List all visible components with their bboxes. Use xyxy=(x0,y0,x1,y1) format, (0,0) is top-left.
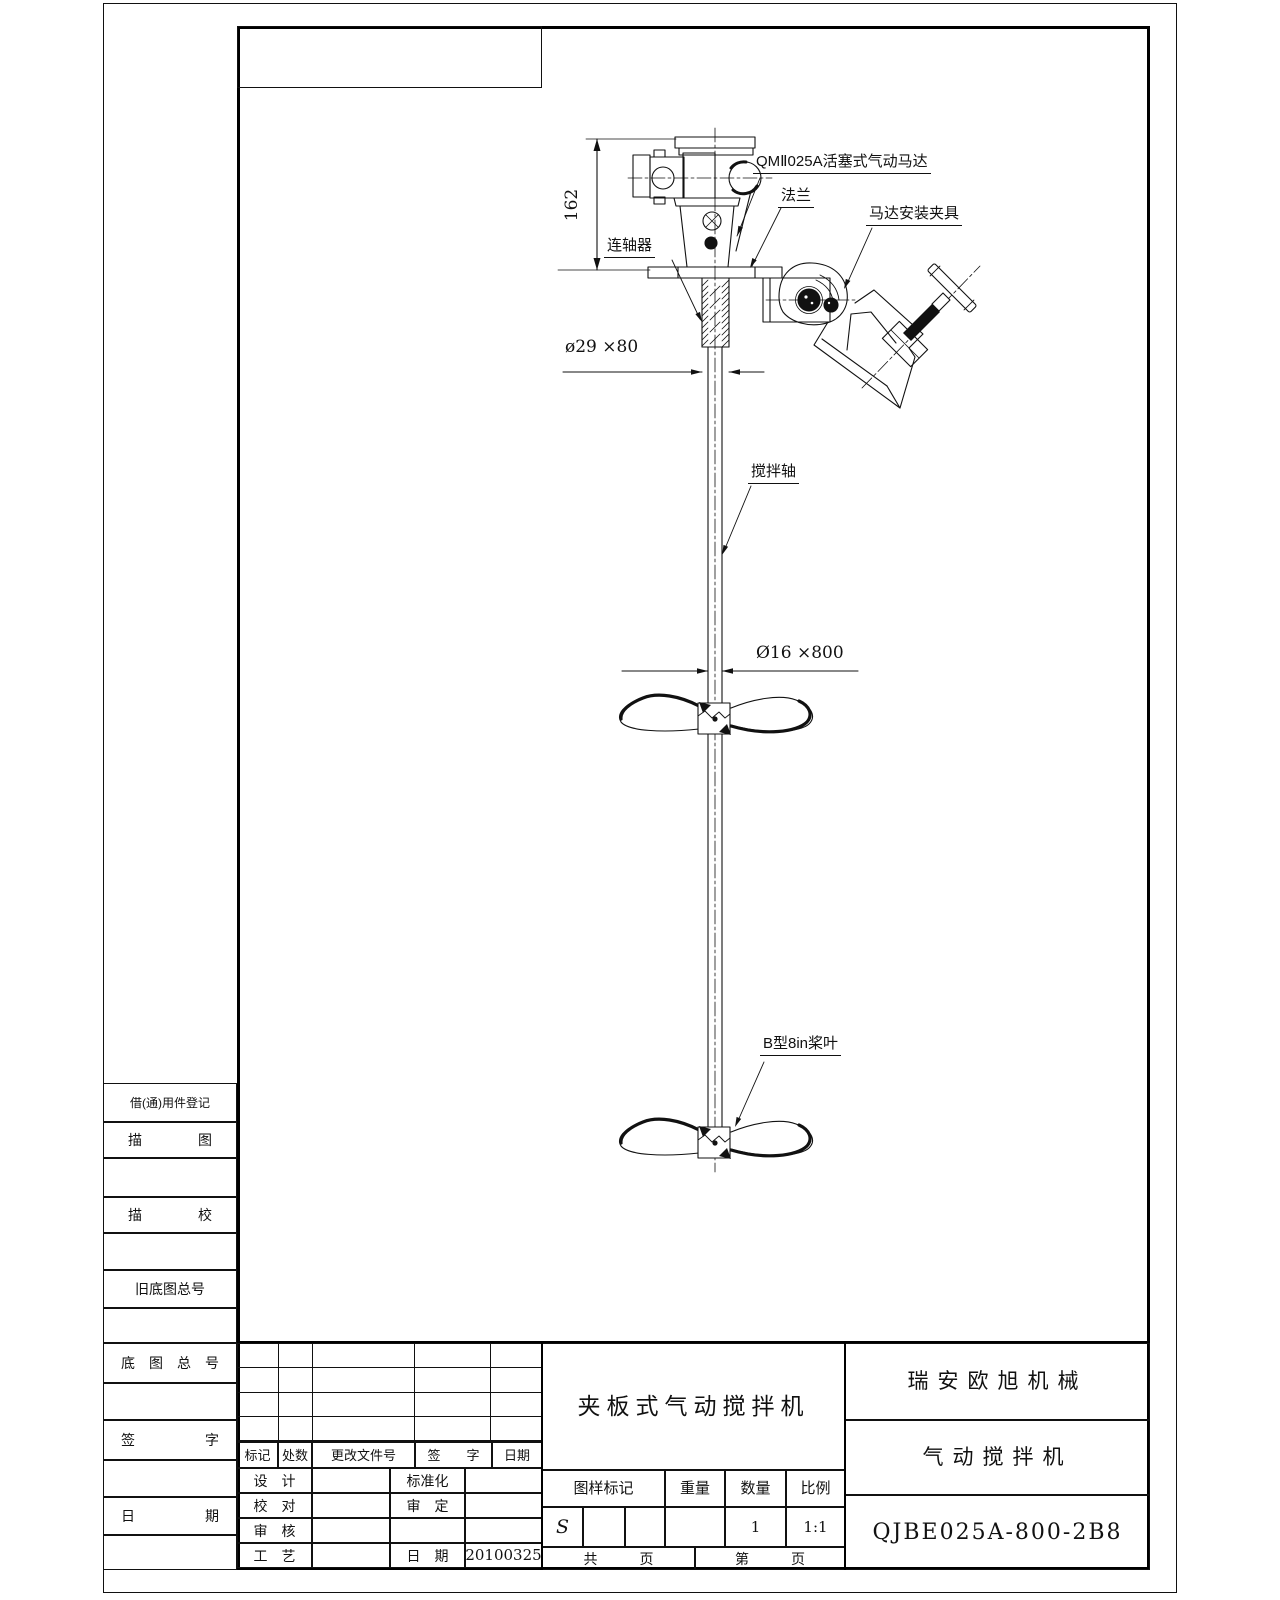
coupling-label: 连轴器 xyxy=(604,238,655,258)
revision-row xyxy=(238,1368,541,1392)
coupling-section xyxy=(702,278,729,347)
sidebar-blank-1 xyxy=(103,1158,237,1197)
rev-header-date: 日期 xyxy=(492,1442,542,1468)
mark-cell-3 xyxy=(625,1507,665,1547)
sidebar-borrowed-parts: 借(通)用件登记 xyxy=(103,1083,237,1122)
blade-label: B型8in桨叶 xyxy=(760,1036,841,1056)
sidebar-trace-drawing: 描 图 xyxy=(103,1122,237,1158)
company-name: 瑞安欧旭机械 xyxy=(845,1343,1150,1420)
sign-review-value xyxy=(312,1518,390,1543)
product-name: 气动搅拌机 xyxy=(845,1420,1150,1495)
revision-row xyxy=(238,1344,541,1368)
dim-29x80-text: ø29 ×80 xyxy=(565,337,638,357)
dim-162-text: 162 xyxy=(562,181,582,229)
drawing-number: QJBE025A-800-2B8 xyxy=(845,1495,1150,1570)
mark-header-quantity: 数量 xyxy=(725,1470,786,1507)
sign-design-value xyxy=(312,1468,390,1493)
weight-value xyxy=(665,1507,725,1547)
stamp-mark: S xyxy=(542,1507,583,1547)
scale-value: 1:1 xyxy=(786,1507,845,1547)
sign-standardize-value xyxy=(465,1468,542,1493)
sign-approve-value xyxy=(465,1493,542,1518)
revision-row xyxy=(238,1417,541,1441)
rev-header-count: 处数 xyxy=(278,1442,312,1468)
motor-label-text: QMⅡ025A活塞式气动马达 xyxy=(753,154,931,174)
rev-header-mark: 标记 xyxy=(237,1442,278,1468)
dim-16x800-text: Ø16 ×800 xyxy=(756,643,844,663)
rev-header-docno: 更改文件号 xyxy=(312,1442,415,1468)
sign-review-cell3 xyxy=(390,1518,465,1543)
clamp-label: 马达安装夹具 xyxy=(866,206,962,226)
titleblock-divider-2 xyxy=(844,1343,846,1570)
flange-label: 法兰 xyxy=(778,188,814,208)
sign-approve-label: 审 定 xyxy=(390,1493,465,1518)
sign-date-value: 20100325 xyxy=(465,1543,542,1568)
titleblock-divider-1 xyxy=(541,1343,543,1570)
quantity-value: 1 xyxy=(725,1507,786,1547)
dimension-16x800 xyxy=(622,668,858,673)
mounting-clamp xyxy=(763,262,978,408)
motor-label: QMⅡ025A活塞式气动马达 xyxy=(753,154,931,174)
propeller xyxy=(620,695,813,735)
sidebar-blank-5 xyxy=(103,1460,237,1497)
sidebar-blank-6 xyxy=(103,1535,237,1570)
revision-table xyxy=(237,1343,542,1442)
sign-review-cell4 xyxy=(465,1518,542,1543)
sidebar-trace-check: 描 校 xyxy=(103,1197,237,1233)
mark-header-scale: 比例 xyxy=(786,1470,845,1507)
drawing-sheet: QMⅡ025A活塞式气动马达 法兰 马达安装夹具 连轴器 搅拌轴 B型8in桨叶… xyxy=(0,0,1280,1600)
sign-date-label: 日 期 xyxy=(390,1543,465,1568)
sidebar-old-base-number: 旧底图总号 xyxy=(103,1270,237,1308)
sidebar-signature: 签 字 xyxy=(103,1420,237,1460)
sign-review-label: 审 核 xyxy=(237,1518,312,1543)
sidebar-blank-3 xyxy=(103,1308,237,1343)
mark-header-weight: 重量 xyxy=(665,1470,725,1507)
sign-check-value xyxy=(312,1493,390,1518)
sign-process-label: 工 艺 xyxy=(237,1543,312,1568)
sidebar-blank-4 xyxy=(103,1383,237,1420)
rev-header-signature: 签 字 xyxy=(415,1442,492,1468)
sign-design-label: 设 计 xyxy=(237,1468,312,1493)
sign-process-value xyxy=(312,1543,390,1568)
shaft-label: 搅拌轴 xyxy=(748,464,799,484)
mark-cell-2 xyxy=(583,1507,625,1547)
dimension-29x80 xyxy=(563,369,764,374)
revision-row xyxy=(238,1393,541,1417)
sidebar-blank-2 xyxy=(103,1233,237,1270)
page-number: 第 页 xyxy=(695,1547,845,1570)
sign-standardize-label: 标准化 xyxy=(390,1468,465,1493)
drawing-title: 夹板式气动搅拌机 xyxy=(542,1343,845,1470)
total-pages: 共 页 xyxy=(542,1547,695,1570)
sign-check-label: 校 对 xyxy=(237,1493,312,1518)
mark-header-drawing-mark: 图样标记 xyxy=(542,1470,665,1507)
sidebar-base-number: 底 图 总 号 xyxy=(103,1343,237,1383)
sidebar-date: 日 期 xyxy=(103,1497,237,1535)
titleblock-top-rule xyxy=(237,1341,1150,1343)
